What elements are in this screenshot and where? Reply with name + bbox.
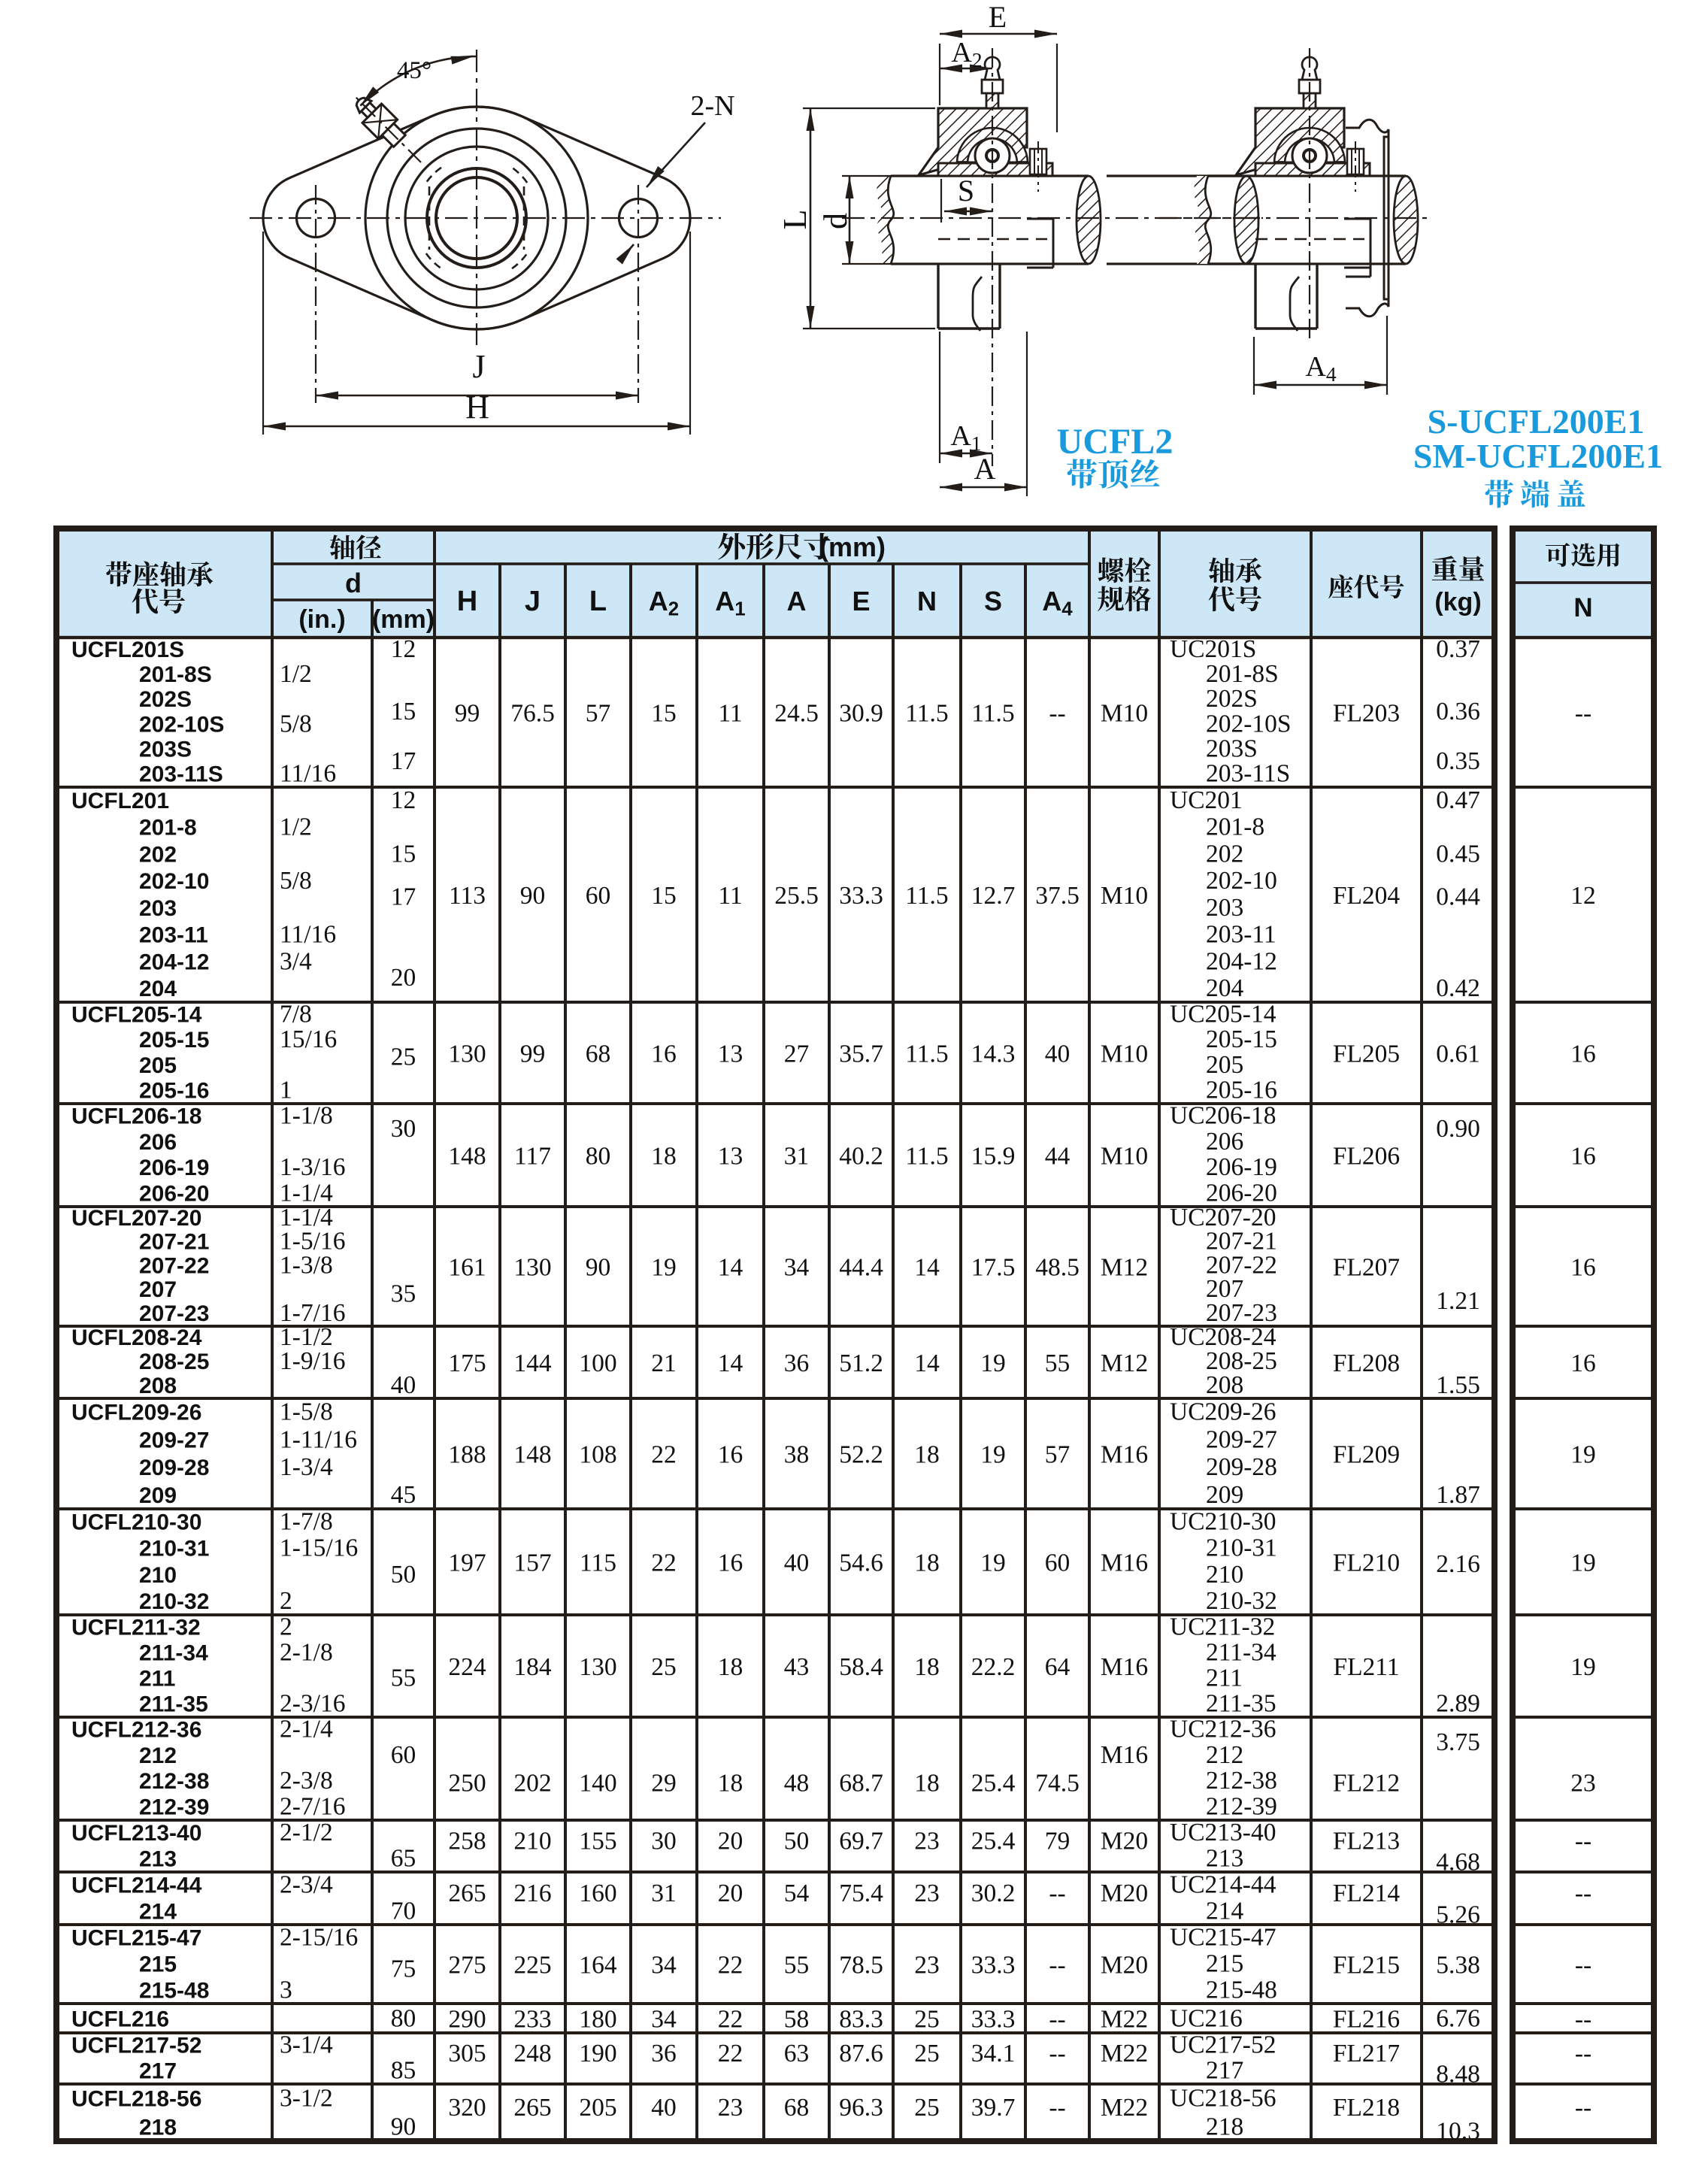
svg-text:UC216: UC216 [1170, 2004, 1243, 2032]
svg-text:1-1/8: 1-1/8 [280, 1102, 333, 1130]
svg-text:45: 45 [391, 1481, 416, 1509]
svg-text:218: 218 [139, 2116, 177, 2140]
svg-text:(mm): (mm) [372, 605, 435, 634]
svg-text:H: H [457, 586, 477, 617]
svg-text:217: 217 [139, 2059, 177, 2084]
svg-text:83.3: 83.3 [839, 2006, 883, 2034]
svg-text:215: 215 [139, 1952, 177, 1977]
svg-text:203-11S: 203-11S [139, 762, 223, 787]
svg-text:L: L [589, 586, 607, 617]
svg-text:48: 48 [784, 1770, 810, 1798]
svg-text:190: 190 [579, 2040, 616, 2067]
svg-text:M16: M16 [1101, 1549, 1148, 1577]
svg-text:17.5: 17.5 [971, 1254, 1016, 1282]
svg-text:205-15: 205-15 [1206, 1025, 1277, 1053]
svg-text:38: 38 [784, 1441, 810, 1469]
svg-text:90: 90 [520, 882, 546, 910]
svg-text:31: 31 [784, 1143, 810, 1171]
svg-text:FL215: FL215 [1333, 1952, 1400, 1980]
svg-text:1-15/16: 1-15/16 [280, 1534, 358, 1562]
svg-text:79: 79 [1045, 1828, 1071, 1855]
svg-text:70: 70 [391, 1897, 416, 1925]
svg-text:209-28: 209-28 [1206, 1453, 1277, 1481]
svg-text:18: 18 [718, 1653, 743, 1681]
svg-text:--: -- [1049, 1880, 1065, 1907]
svg-text:35.7: 35.7 [839, 1041, 883, 1068]
svg-text:144: 144 [513, 1349, 552, 1377]
svg-text:209-28: 209-28 [139, 1455, 209, 1480]
svg-text:22: 22 [718, 2006, 743, 2034]
svg-text:12: 12 [391, 786, 416, 814]
svg-text:--: -- [1575, 1952, 1591, 1980]
svg-text:18: 18 [651, 1143, 677, 1171]
svg-text:13: 13 [718, 1143, 743, 1171]
svg-text:130: 130 [579, 1653, 616, 1681]
svg-text:180: 180 [579, 2006, 616, 2034]
svg-text:2-15/16: 2-15/16 [280, 1923, 358, 1951]
svg-text:207: 207 [139, 1277, 177, 1302]
svg-text:19: 19 [980, 1549, 1006, 1577]
svg-text:6.76: 6.76 [1436, 2004, 1480, 2032]
svg-text:(mm): (mm) [819, 532, 886, 562]
svg-text:8.48: 8.48 [1436, 2061, 1480, 2089]
svg-text:210-32: 210-32 [139, 1589, 209, 1614]
svg-text:29: 29 [651, 1770, 677, 1798]
svg-text:16: 16 [1570, 1349, 1596, 1377]
svg-text:40: 40 [391, 1371, 416, 1399]
svg-text:212-39: 212-39 [1206, 1793, 1277, 1821]
svg-text:211: 211 [139, 1667, 175, 1692]
svg-text:14: 14 [914, 1254, 940, 1282]
svg-text:UCFL210-30: UCFL210-30 [71, 1510, 201, 1535]
svg-text:23: 23 [914, 1828, 940, 1855]
svg-text:18: 18 [914, 1770, 940, 1798]
svg-text:--: -- [1049, 1952, 1065, 1980]
svg-text:206: 206 [1206, 1128, 1243, 1156]
svg-text:55: 55 [391, 1665, 416, 1692]
svg-text:203: 203 [139, 896, 177, 921]
svg-text:--: -- [1049, 700, 1065, 728]
svg-text:204-12: 204-12 [1206, 947, 1277, 975]
svg-text:A: A [974, 452, 996, 486]
svg-text:2-1/2: 2-1/2 [280, 1819, 333, 1846]
svg-text:175: 175 [448, 1349, 486, 1377]
svg-text:90: 90 [391, 2113, 416, 2141]
svg-text:15/16: 15/16 [280, 1025, 337, 1053]
svg-text:--: -- [1575, 2040, 1591, 2067]
svg-text:33.3: 33.3 [971, 1952, 1016, 1980]
svg-text:215-48: 215-48 [1206, 1976, 1277, 2004]
svg-text:202: 202 [139, 842, 177, 867]
svg-text:80: 80 [391, 2004, 416, 2032]
svg-text:M10: M10 [1101, 700, 1148, 728]
svg-text:15: 15 [391, 840, 416, 868]
svg-text:203-11: 203-11 [1206, 921, 1276, 949]
svg-text:19: 19 [1570, 1653, 1596, 1681]
svg-text:d: d [817, 213, 854, 229]
svg-text:UCFL206-18: UCFL206-18 [71, 1104, 201, 1129]
svg-text:69.7: 69.7 [839, 1828, 883, 1855]
svg-text:1: 1 [280, 1077, 292, 1104]
svg-text:76.5: 76.5 [510, 700, 555, 728]
svg-text:FL206: FL206 [1333, 1143, 1400, 1171]
svg-text:206-20: 206-20 [139, 1182, 209, 1207]
svg-text:211-34: 211-34 [139, 1641, 208, 1666]
svg-text:22: 22 [651, 1549, 677, 1577]
svg-text:11.5: 11.5 [905, 1143, 948, 1171]
svg-text:3: 3 [280, 1976, 292, 2004]
svg-text:12: 12 [391, 635, 416, 663]
svg-text:UC213-40: UC213-40 [1170, 1819, 1276, 1846]
svg-text:UC211-32: UC211-32 [1170, 1613, 1275, 1641]
svg-text:23: 23 [914, 1880, 940, 1907]
svg-text:S: S [984, 586, 1002, 616]
svg-text:211-35: 211-35 [139, 1692, 208, 1717]
svg-text:204: 204 [1206, 974, 1244, 1002]
svg-text:57: 57 [586, 700, 611, 728]
svg-text:250: 250 [448, 1770, 486, 1798]
svg-text:157: 157 [513, 1549, 551, 1577]
svg-text:UC218-56: UC218-56 [1170, 2085, 1276, 2113]
svg-text:M12: M12 [1101, 1254, 1148, 1282]
svg-text:60: 60 [391, 1741, 416, 1769]
svg-text:320: 320 [448, 2094, 486, 2122]
svg-text:218: 218 [1206, 2113, 1243, 2141]
svg-text:202: 202 [1206, 840, 1243, 868]
svg-text:197: 197 [448, 1549, 486, 1577]
svg-text:25: 25 [651, 1653, 677, 1681]
svg-text:209: 209 [139, 1483, 177, 1508]
svg-text:275: 275 [448, 1952, 486, 1980]
svg-text:FL218: FL218 [1333, 2094, 1400, 2122]
svg-text:1-9/16: 1-9/16 [280, 1347, 345, 1375]
svg-text:33.3: 33.3 [971, 2006, 1016, 2034]
svg-text:18: 18 [914, 1549, 940, 1577]
svg-text:UCFL211-32: UCFL211-32 [71, 1616, 201, 1640]
svg-text:2-3/4: 2-3/4 [280, 1870, 333, 1898]
svg-text:202S: 202S [1206, 685, 1258, 713]
svg-text:M12: M12 [1101, 1349, 1148, 1377]
svg-text:40: 40 [1045, 1041, 1071, 1068]
svg-text:63: 63 [784, 2040, 810, 2067]
svg-text:36: 36 [651, 2040, 677, 2067]
svg-text:258: 258 [448, 1828, 486, 1855]
svg-text:99: 99 [455, 700, 480, 728]
svg-text:27: 27 [784, 1041, 810, 1068]
svg-text:3-1/4: 3-1/4 [280, 2031, 333, 2059]
svg-text:E: E [852, 586, 870, 616]
svg-text:203: 203 [1206, 894, 1243, 922]
svg-text:19: 19 [980, 1349, 1006, 1377]
svg-text:0.61: 0.61 [1436, 1041, 1480, 1068]
svg-text:UCFL201S: UCFL201S [71, 638, 184, 662]
svg-text:265: 265 [448, 1880, 486, 1907]
svg-text:14: 14 [914, 1349, 940, 1377]
svg-text:215-48: 215-48 [139, 1978, 209, 2003]
svg-text:54: 54 [784, 1880, 810, 1907]
svg-text:90: 90 [586, 1254, 611, 1282]
svg-text:13: 13 [718, 1041, 743, 1068]
svg-text:M20: M20 [1101, 1828, 1148, 1855]
svg-text:--: -- [1575, 700, 1591, 728]
svg-text:2-7/16: 2-7/16 [280, 1793, 345, 1821]
svg-text:213: 213 [139, 1846, 177, 1871]
svg-text:201-8S: 201-8S [1206, 660, 1279, 688]
svg-text:UCFL207-20: UCFL207-20 [71, 1206, 201, 1231]
svg-text:85: 85 [391, 2057, 416, 2085]
svg-text:2-1/4: 2-1/4 [280, 1716, 333, 1743]
svg-text:M10: M10 [1101, 882, 1148, 910]
svg-text:202S: 202S [139, 687, 192, 712]
svg-text:2.89: 2.89 [1436, 1690, 1480, 1718]
svg-text:212: 212 [139, 1743, 177, 1768]
svg-text:A: A [787, 586, 807, 616]
svg-text:16: 16 [1570, 1143, 1596, 1171]
svg-text:E: E [989, 0, 1007, 34]
svg-text:203S: 203S [139, 738, 192, 762]
svg-text:65: 65 [391, 1844, 416, 1872]
svg-text:18: 18 [718, 1770, 743, 1798]
svg-text:212-39: 212-39 [139, 1795, 209, 1820]
svg-text:20: 20 [718, 1880, 743, 1907]
svg-text:2.16: 2.16 [1436, 1550, 1480, 1578]
svg-text:18: 18 [914, 1441, 940, 1469]
svg-text:14: 14 [718, 1349, 743, 1377]
svg-text:30.9: 30.9 [839, 700, 883, 728]
svg-text:(in.): (in.) [298, 605, 345, 634]
svg-text:74.5: 74.5 [1035, 1770, 1080, 1798]
svg-text:22: 22 [651, 1441, 677, 1469]
svg-text:3/4: 3/4 [280, 947, 312, 975]
svg-text:206-19: 206-19 [139, 1156, 209, 1180]
svg-text:203S: 203S [1206, 735, 1258, 763]
svg-text:210-32: 210-32 [1206, 1587, 1277, 1615]
svg-text:15: 15 [391, 698, 416, 725]
svg-text:1/2: 1/2 [280, 660, 312, 688]
svg-text:25: 25 [914, 2006, 940, 2034]
svg-text:155: 155 [579, 1828, 616, 1855]
svg-text:23: 23 [914, 1952, 940, 1980]
svg-text:FL210: FL210 [1333, 1549, 1400, 1577]
svg-text:213: 213 [1206, 1844, 1243, 1872]
svg-text:1-3/8: 1-3/8 [280, 1251, 333, 1279]
svg-text:FL204: FL204 [1333, 882, 1401, 910]
svg-text:0.42: 0.42 [1436, 974, 1480, 1002]
svg-text:FL211: FL211 [1333, 1653, 1399, 1681]
svg-text:22: 22 [718, 1952, 743, 1980]
svg-text:3-1/2: 3-1/2 [280, 2085, 333, 2113]
svg-text:40: 40 [651, 2094, 677, 2122]
svg-text:2-N: 2-N [690, 90, 734, 122]
svg-text:115: 115 [580, 1549, 616, 1577]
svg-text:207-22: 207-22 [139, 1253, 209, 1278]
svg-text:205: 205 [579, 2094, 616, 2122]
svg-text:148: 148 [513, 1441, 551, 1469]
svg-text:36: 36 [784, 1349, 810, 1377]
svg-text:23: 23 [1570, 1770, 1596, 1798]
svg-text:224: 224 [448, 1653, 486, 1681]
svg-text:19: 19 [980, 1441, 1006, 1469]
svg-text:34.1: 34.1 [971, 2040, 1016, 2067]
svg-text:214: 214 [1206, 1897, 1244, 1925]
svg-text:5.26: 5.26 [1436, 1901, 1480, 1929]
svg-text:17: 17 [391, 747, 416, 775]
svg-text:5.38: 5.38 [1436, 1952, 1480, 1980]
svg-text:50: 50 [391, 1561, 416, 1589]
svg-text:210: 210 [139, 1563, 177, 1588]
svg-text:58.4: 58.4 [839, 1653, 883, 1681]
svg-text:(kg): (kg) [1434, 588, 1481, 616]
svg-text:24.5: 24.5 [774, 700, 819, 728]
svg-text:31: 31 [651, 1880, 677, 1907]
svg-text:184: 184 [513, 1653, 552, 1681]
svg-text:H: H [465, 389, 489, 426]
svg-text:217: 217 [1206, 2057, 1243, 2085]
svg-text:19: 19 [1570, 1441, 1596, 1469]
svg-text:--: -- [1575, 2094, 1591, 2122]
svg-text:0.37: 0.37 [1436, 635, 1480, 663]
svg-text:UCFL218-56: UCFL218-56 [71, 2087, 201, 2112]
svg-text:44.4: 44.4 [839, 1254, 883, 1282]
svg-text:43: 43 [784, 1653, 810, 1681]
svg-text:68.7: 68.7 [839, 1770, 883, 1798]
svg-text:201-8S: 201-8S [139, 662, 212, 687]
svg-text:212: 212 [1206, 1741, 1243, 1769]
svg-text:202-10: 202-10 [139, 869, 209, 894]
svg-text:210: 210 [513, 1828, 551, 1855]
svg-text:2: 2 [280, 1613, 292, 1641]
svg-text:--: -- [1049, 2006, 1065, 2034]
svg-text:5/8: 5/8 [280, 710, 312, 738]
svg-text:305: 305 [448, 2040, 486, 2067]
svg-text:M20: M20 [1101, 1880, 1148, 1907]
svg-text:7/8: 7/8 [280, 1000, 312, 1028]
svg-text:FL203: FL203 [1333, 700, 1400, 728]
svg-text:UC214-44: UC214-44 [1170, 1870, 1276, 1898]
svg-text:205: 205 [1206, 1051, 1243, 1079]
svg-text:M16: M16 [1101, 1741, 1148, 1769]
svg-text:SM-UCFL200E1: SM-UCFL200E1 [1413, 437, 1663, 475]
svg-text:17: 17 [391, 883, 416, 911]
svg-text:21: 21 [651, 1349, 677, 1377]
svg-text:205: 205 [139, 1053, 177, 1078]
svg-text:FL216: FL216 [1333, 2006, 1400, 2034]
svg-text:201-8: 201-8 [139, 816, 197, 841]
svg-text:130: 130 [448, 1041, 486, 1068]
svg-text:68: 68 [784, 2094, 810, 2122]
svg-text:25: 25 [914, 2040, 940, 2067]
svg-text:0.90: 0.90 [1436, 1115, 1480, 1143]
svg-text:290: 290 [448, 2006, 486, 2034]
svg-text:1-11/16: 1-11/16 [280, 1425, 357, 1453]
svg-text:25.4: 25.4 [971, 1770, 1016, 1798]
svg-text:206: 206 [139, 1130, 177, 1155]
svg-text:117: 117 [514, 1143, 551, 1171]
svg-text:UCFL215-47: UCFL215-47 [71, 1925, 201, 1950]
svg-text:1-3/4: 1-3/4 [280, 1453, 333, 1481]
svg-text:202-10S: 202-10S [1206, 710, 1292, 738]
svg-text:80: 80 [586, 1143, 611, 1171]
svg-text:19: 19 [1570, 1549, 1596, 1577]
svg-text:39.7: 39.7 [971, 2094, 1016, 2122]
svg-text:30: 30 [391, 1115, 416, 1143]
svg-text:52.2: 52.2 [839, 1441, 883, 1469]
svg-text:40: 40 [784, 1549, 810, 1577]
svg-text:UCFL205-14: UCFL205-14 [71, 1002, 202, 1027]
svg-text:202: 202 [513, 1770, 551, 1798]
svg-text:210-31: 210-31 [1206, 1534, 1277, 1562]
svg-text:202-10: 202-10 [1206, 867, 1277, 895]
svg-text:12.7: 12.7 [971, 882, 1016, 910]
svg-text:204-12: 204-12 [139, 950, 209, 974]
svg-text:35: 35 [391, 1280, 416, 1308]
svg-text:UCFL201: UCFL201 [71, 789, 169, 813]
svg-text:0.35: 0.35 [1436, 747, 1480, 775]
svg-text:--: -- [1575, 2006, 1591, 2034]
svg-text:16: 16 [718, 1549, 743, 1577]
svg-text:54.6: 54.6 [839, 1549, 883, 1577]
svg-text:1-5/8: 1-5/8 [280, 1398, 333, 1426]
svg-text:1.21: 1.21 [1436, 1287, 1480, 1315]
svg-text:16: 16 [1570, 1254, 1596, 1282]
svg-text:UC201S: UC201S [1170, 635, 1256, 663]
svg-text:5/8: 5/8 [280, 867, 312, 895]
svg-text:M20: M20 [1101, 1952, 1148, 1980]
svg-text:UC212-36: UC212-36 [1170, 1716, 1276, 1743]
svg-text:2-3/16: 2-3/16 [280, 1690, 345, 1718]
svg-text:0.36: 0.36 [1436, 698, 1480, 725]
svg-text:16: 16 [651, 1041, 677, 1068]
svg-text:18: 18 [914, 1653, 940, 1681]
svg-text:211-35: 211-35 [1206, 1690, 1276, 1718]
svg-text:33.3: 33.3 [839, 882, 883, 910]
svg-text:206-19: 206-19 [1206, 1153, 1277, 1181]
svg-text:UC210-30: UC210-30 [1170, 1508, 1276, 1536]
svg-text:202-10S: 202-10S [139, 712, 224, 737]
svg-text:96.3: 96.3 [839, 2094, 883, 2122]
svg-text:48.5: 48.5 [1035, 1254, 1080, 1282]
svg-text:34: 34 [784, 1254, 810, 1282]
svg-text:1-7/8: 1-7/8 [280, 1508, 333, 1536]
svg-text:64: 64 [1045, 1653, 1071, 1681]
svg-text:FL209: FL209 [1333, 1441, 1400, 1469]
svg-text:30: 30 [651, 1828, 677, 1855]
svg-text:164: 164 [579, 1952, 617, 1980]
svg-text:16: 16 [1570, 1041, 1596, 1068]
svg-text:161: 161 [448, 1254, 486, 1282]
svg-text:100: 100 [579, 1349, 616, 1377]
svg-text:20: 20 [718, 1828, 743, 1855]
svg-text:14: 14 [718, 1254, 743, 1282]
svg-text:M16: M16 [1101, 1653, 1148, 1681]
svg-text:34: 34 [651, 1952, 677, 1980]
svg-text:11: 11 [718, 882, 742, 910]
svg-text:UC206-18: UC206-18 [1170, 1102, 1276, 1130]
svg-text:210-31: 210-31 [139, 1537, 209, 1562]
svg-text:15.9: 15.9 [971, 1143, 1016, 1171]
svg-text:113: 113 [449, 882, 486, 910]
svg-text:211: 211 [1206, 1665, 1243, 1692]
svg-text:M10: M10 [1101, 1143, 1148, 1171]
svg-text:99: 99 [520, 1041, 546, 1068]
svg-text:20: 20 [391, 964, 416, 992]
svg-text:108: 108 [579, 1441, 616, 1469]
svg-text:188: 188 [448, 1441, 486, 1469]
svg-text:248: 248 [513, 2040, 551, 2067]
svg-text:207-21: 207-21 [139, 1230, 209, 1255]
svg-text:22: 22 [718, 2040, 743, 2067]
svg-text:34: 34 [651, 2006, 677, 2034]
